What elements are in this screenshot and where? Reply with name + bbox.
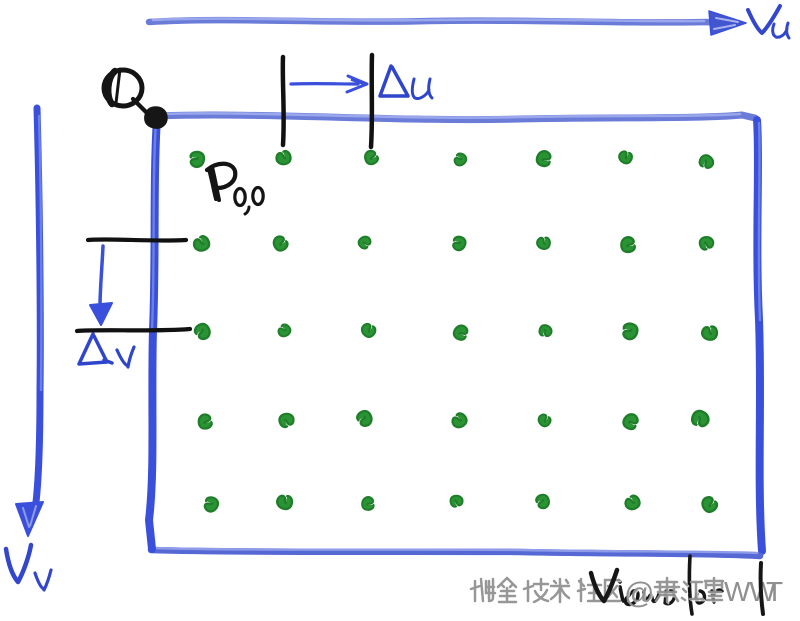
- svg-text:@: @: [624, 577, 654, 610]
- svg-text:T: T: [766, 576, 783, 607]
